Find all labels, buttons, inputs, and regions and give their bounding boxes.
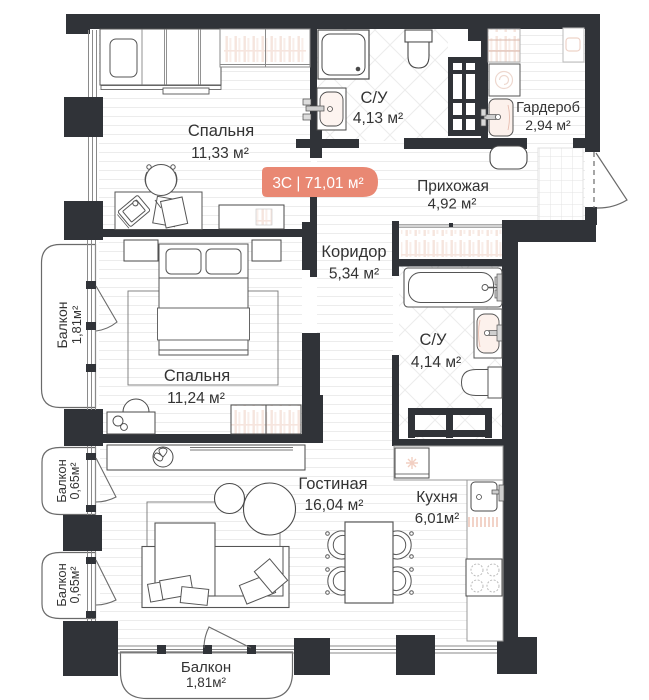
svg-text:Коридор: Коридор (321, 243, 386, 261)
svg-text:0,65м²: 0,65м² (68, 462, 82, 499)
svg-text:Балкон: Балкон (181, 659, 231, 676)
svg-text:С/У: С/У (361, 89, 389, 107)
svg-text:1,81м²: 1,81м² (186, 675, 227, 690)
svg-text:Балкон: Балкон (54, 459, 69, 503)
svg-text:Спальня: Спальня (188, 122, 254, 140)
svg-text:Балкон: Балкон (54, 302, 70, 349)
svg-text:11,24 м²: 11,24 м² (167, 390, 225, 407)
svg-text:Спальня: Спальня (164, 367, 230, 385)
svg-text:4,14 м²: 4,14 м² (411, 354, 461, 371)
svg-text:0,65м²: 0,65м² (68, 566, 82, 603)
svg-text:6,01м²: 6,01м² (415, 510, 460, 527)
svg-text:4,92 м²: 4,92 м² (428, 196, 477, 213)
svg-text:16,04 м²: 16,04 м² (305, 497, 364, 514)
svg-text:Прихожая: Прихожая (417, 178, 489, 195)
svg-text:4,13 м²: 4,13 м² (353, 110, 403, 127)
svg-text:Гостиная: Гостиная (298, 475, 367, 493)
svg-text:1,81м²: 1,81м² (69, 305, 84, 344)
svg-text:Кухня: Кухня (416, 489, 457, 506)
svg-text:11,33 м²: 11,33 м² (191, 145, 249, 162)
svg-text:3С | 71,01 м²: 3С | 71,01 м² (272, 175, 363, 192)
svg-text:С/У: С/У (420, 331, 448, 349)
svg-text:5,34 м²: 5,34 м² (329, 266, 379, 283)
svg-text:Балкон: Балкон (54, 563, 69, 607)
svg-text:2,94 м²: 2,94 м² (525, 117, 571, 133)
svg-text:Гардероб: Гардероб (516, 100, 580, 116)
